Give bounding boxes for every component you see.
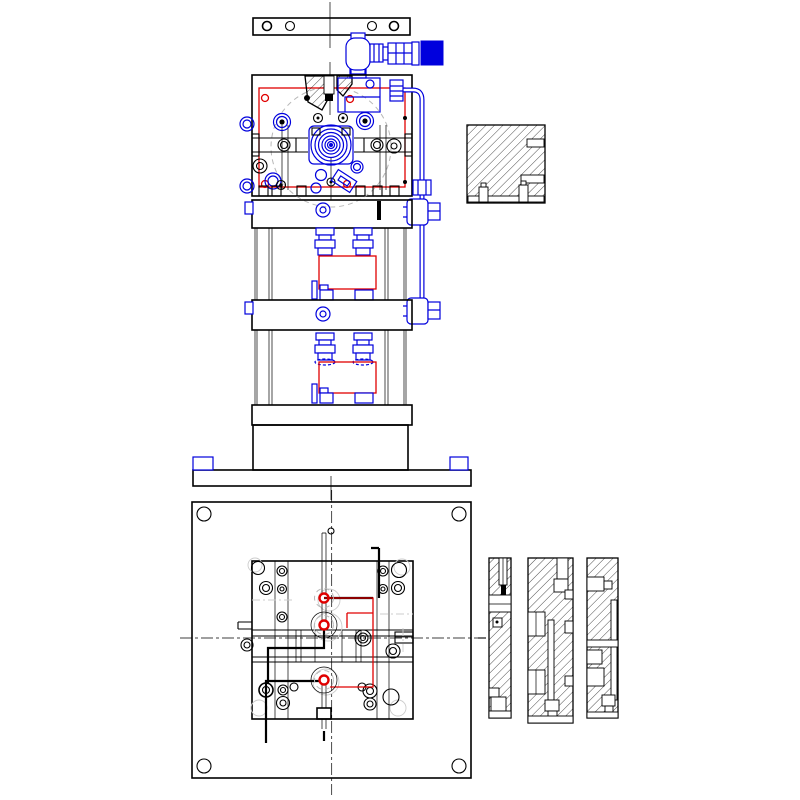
section-strip-2 bbox=[528, 558, 573, 723]
upper-die-block bbox=[240, 75, 412, 207]
side-clamp bbox=[245, 302, 253, 314]
water-port-3 bbox=[320, 676, 329, 685]
clamp-plate-top bbox=[245, 200, 412, 228]
detail-pin-1 bbox=[479, 187, 488, 202]
clamp-plate-middle bbox=[245, 300, 412, 330]
side-clamp bbox=[245, 202, 253, 214]
front-elevation-view bbox=[193, 2, 471, 500]
plan-view bbox=[180, 490, 484, 795]
pipe-elbow-top bbox=[403, 199, 440, 225]
pipe-elbow-bottom bbox=[403, 298, 440, 324]
sprue bbox=[324, 76, 334, 94]
drawing-canvas bbox=[0, 0, 800, 800]
lower-plate bbox=[252, 405, 412, 425]
section-cut-right bbox=[337, 76, 352, 96]
section-strip-3 bbox=[587, 558, 618, 718]
ejector-pin bbox=[548, 620, 554, 700]
detail-slot-1 bbox=[527, 139, 544, 147]
angled-cylinder bbox=[311, 170, 357, 194]
section-strip-1 bbox=[489, 558, 511, 718]
cad-drawing bbox=[0, 0, 800, 800]
water-port-2 bbox=[320, 621, 329, 630]
base-block bbox=[253, 425, 408, 470]
hydraulic-pipe bbox=[390, 80, 440, 324]
hose-clamp bbox=[317, 708, 331, 719]
pipe-union bbox=[413, 180, 431, 195]
base-clamp-right bbox=[450, 457, 468, 470]
coupler-plug bbox=[421, 41, 443, 65]
base-plate bbox=[193, 457, 471, 486]
die-block-plan bbox=[238, 528, 413, 719]
riser-section-bottom bbox=[255, 330, 406, 405]
base-clamp-left bbox=[193, 457, 213, 470]
cable-gland-pair-top bbox=[315, 228, 373, 255]
hatched-detail-block bbox=[467, 125, 545, 203]
cable-gland-pair-bottom bbox=[315, 333, 373, 365]
quick-coupler-fitting bbox=[346, 33, 443, 78]
top-clamp-bar bbox=[253, 18, 410, 35]
highlight-box-mid-1 bbox=[319, 256, 376, 289]
riser-section-top bbox=[255, 228, 406, 300]
detail-pin-2 bbox=[519, 185, 528, 202]
